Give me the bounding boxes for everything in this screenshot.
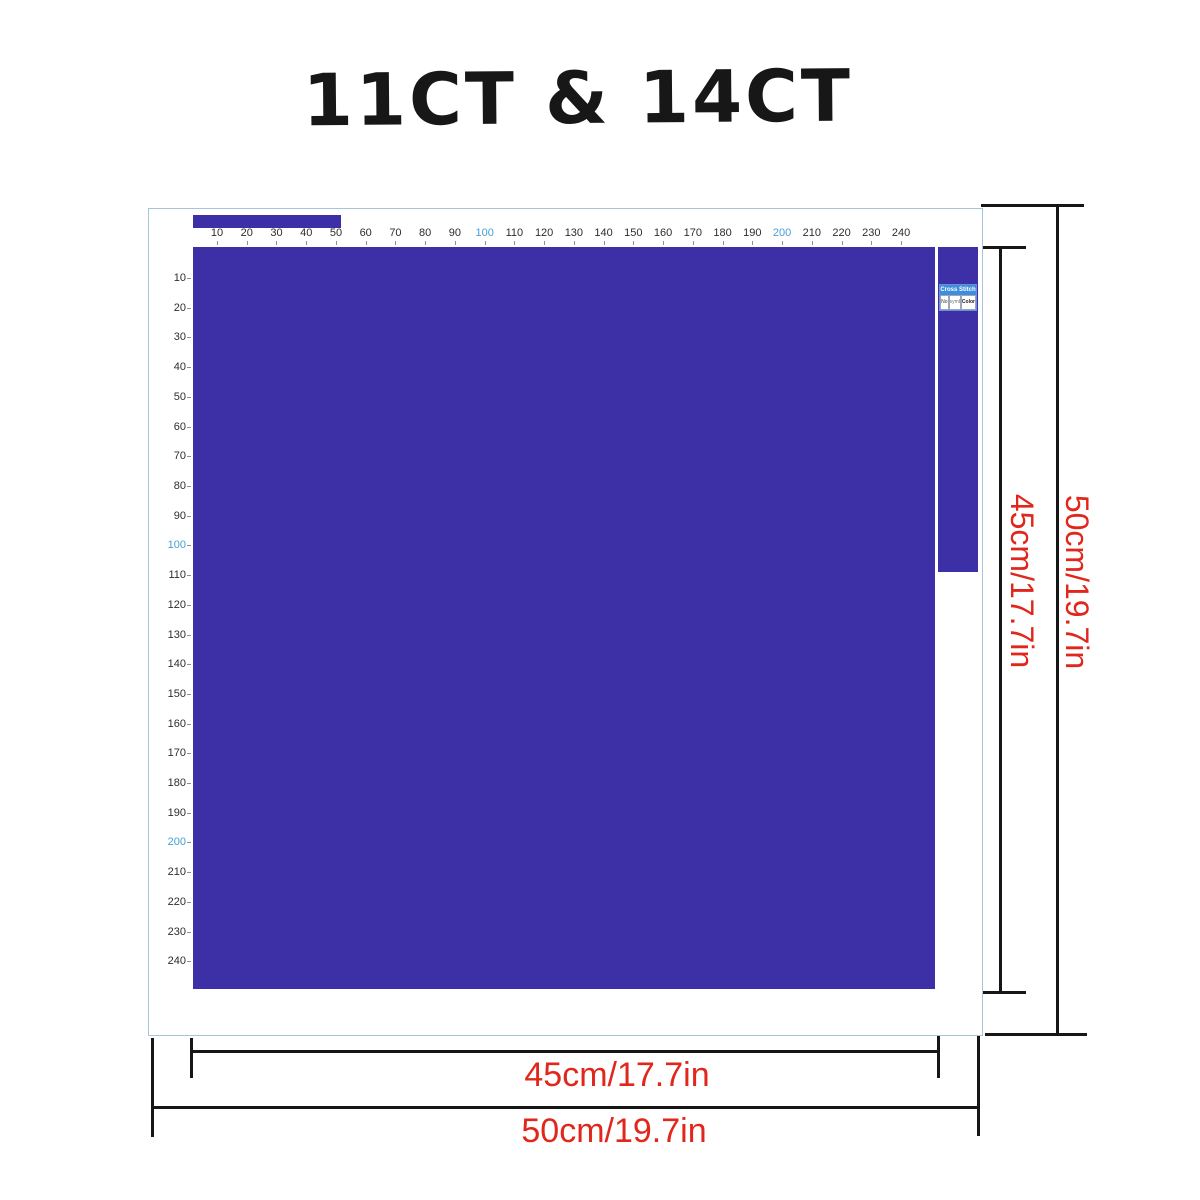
dim-outer-width-cap-right (977, 1036, 980, 1136)
left-ruler-tick (187, 605, 191, 606)
top-ruler-tick (544, 241, 545, 245)
left-ruler-tick (187, 813, 191, 814)
left-ruler-number: 230 (148, 925, 186, 939)
page-title: 11CT & 14CT (288, 53, 869, 158)
legend-col-symbol: symbol (949, 295, 961, 310)
left-ruler-number: 60 (148, 420, 186, 434)
dim-outer-width-line (153, 1106, 979, 1109)
top-ruler-tick (514, 241, 515, 245)
left-ruler-number: 20 (148, 301, 186, 315)
left-ruler-number: 140 (148, 657, 186, 671)
left-ruler-number: 130 (148, 628, 186, 642)
top-ruler-tick (663, 241, 664, 245)
left-ruler-tick (187, 545, 191, 546)
left-ruler-tick (187, 486, 191, 487)
left-ruler-number: 240 (148, 954, 186, 968)
printed-design-area (193, 247, 935, 989)
left-ruler-number: 80 (148, 479, 186, 493)
left-ruler-number: 100 (148, 538, 186, 552)
top-ruler-tick (723, 241, 724, 245)
top-ruler-tick (574, 241, 575, 245)
top-ruler-tick (425, 241, 426, 245)
label-inner-height: 45cm/17.7in (1004, 451, 1040, 711)
left-ruler-tick (187, 397, 191, 398)
label-inner-width: 45cm/17.7in (417, 1056, 817, 1095)
left-ruler-tick (187, 308, 191, 309)
top-ruler-tick (217, 241, 218, 245)
dim-outer-width-cap-left (151, 1038, 154, 1137)
legend-col-color: Color (961, 295, 976, 310)
left-ruler-tick (187, 842, 191, 843)
top-ruler-tick (693, 241, 694, 245)
left-ruler-tick (187, 337, 191, 338)
top-ruler-tick (336, 241, 337, 245)
left-ruler-tick (187, 367, 191, 368)
left-ruler-tick (187, 694, 191, 695)
top-ruler-tick (395, 241, 396, 245)
left-ruler-number: 210 (148, 865, 186, 879)
top-ruler-tick (485, 241, 486, 245)
top-ruler-tick (276, 241, 277, 245)
top-ruler-tick (455, 241, 456, 245)
left-ruler-tick (187, 575, 191, 576)
top-ruler-tick (871, 241, 872, 245)
left-ruler-number: 200 (148, 835, 186, 849)
top-ruler-tick (752, 241, 753, 245)
label-outer-width: 50cm/19.7in (414, 1112, 814, 1151)
top-ruler-tick (782, 241, 783, 245)
top-ruler-tick (366, 241, 367, 245)
left-ruler-number: 10 (148, 271, 186, 285)
left-ruler-number: 190 (148, 806, 186, 820)
dim-inner-height-cap-top (983, 246, 1026, 249)
left-ruler-number: 220 (148, 895, 186, 909)
legend-col-no: No (940, 295, 949, 310)
legend-key-table: Cross Stitch No symbol Color (939, 284, 977, 311)
left-ruler-number: 30 (148, 330, 186, 344)
left-ruler-number: 40 (148, 360, 186, 374)
top-ruler-tick (901, 241, 902, 245)
left-ruler-tick (187, 278, 191, 279)
product-dimension-diagram: 11CT & 14CT Cross Stitch No symbol Color… (0, 0, 1200, 1200)
top-ruler-tick (306, 241, 307, 245)
left-ruler-number: 110 (148, 568, 186, 582)
left-ruler-number: 120 (148, 598, 186, 612)
label-outer-height: 50cm/19.7in (1059, 452, 1095, 712)
dim-inner-width-line (191, 1050, 939, 1053)
left-ruler-tick (187, 724, 191, 725)
left-ruler-number: 50 (148, 390, 186, 404)
left-ruler-tick (187, 516, 191, 517)
legend-columns-row: No symbol Color (940, 295, 976, 310)
dim-outer-height-cap-bottom (985, 1033, 1087, 1036)
left-ruler-tick (187, 783, 191, 784)
left-ruler-tick (187, 427, 191, 428)
left-ruler-tick (187, 664, 191, 665)
dim-outer-height-cap-top (981, 204, 1084, 207)
left-ruler-number: 90 (148, 509, 186, 523)
left-ruler-tick (187, 456, 191, 457)
left-ruler-tick (187, 902, 191, 903)
left-ruler-tick (187, 872, 191, 873)
legend-header: Cross Stitch (940, 285, 976, 295)
top-ruler-tick (247, 241, 248, 245)
dim-inner-width-cap-right (937, 1036, 940, 1078)
top-ruler-tick (812, 241, 813, 245)
left-ruler-tick (187, 961, 191, 962)
top-ruler-tick (604, 241, 605, 245)
left-ruler-number: 170 (148, 746, 186, 760)
dim-inner-height-cap-bottom (983, 991, 1026, 994)
left-ruler-number: 150 (148, 687, 186, 701)
left-ruler-tick (187, 753, 191, 754)
dim-inner-width-cap-left (190, 1038, 193, 1078)
top-ruler-tick (842, 241, 843, 245)
top-ruler-tick (633, 241, 634, 245)
left-ruler-number: 160 (148, 717, 186, 731)
left-ruler-number: 180 (148, 776, 186, 790)
left-ruler-tick (187, 635, 191, 636)
left-ruler-number: 70 (148, 449, 186, 463)
left-ruler-tick (187, 932, 191, 933)
dim-inner-height-line (999, 248, 1002, 993)
top-ruler-number: 240 (881, 227, 921, 240)
